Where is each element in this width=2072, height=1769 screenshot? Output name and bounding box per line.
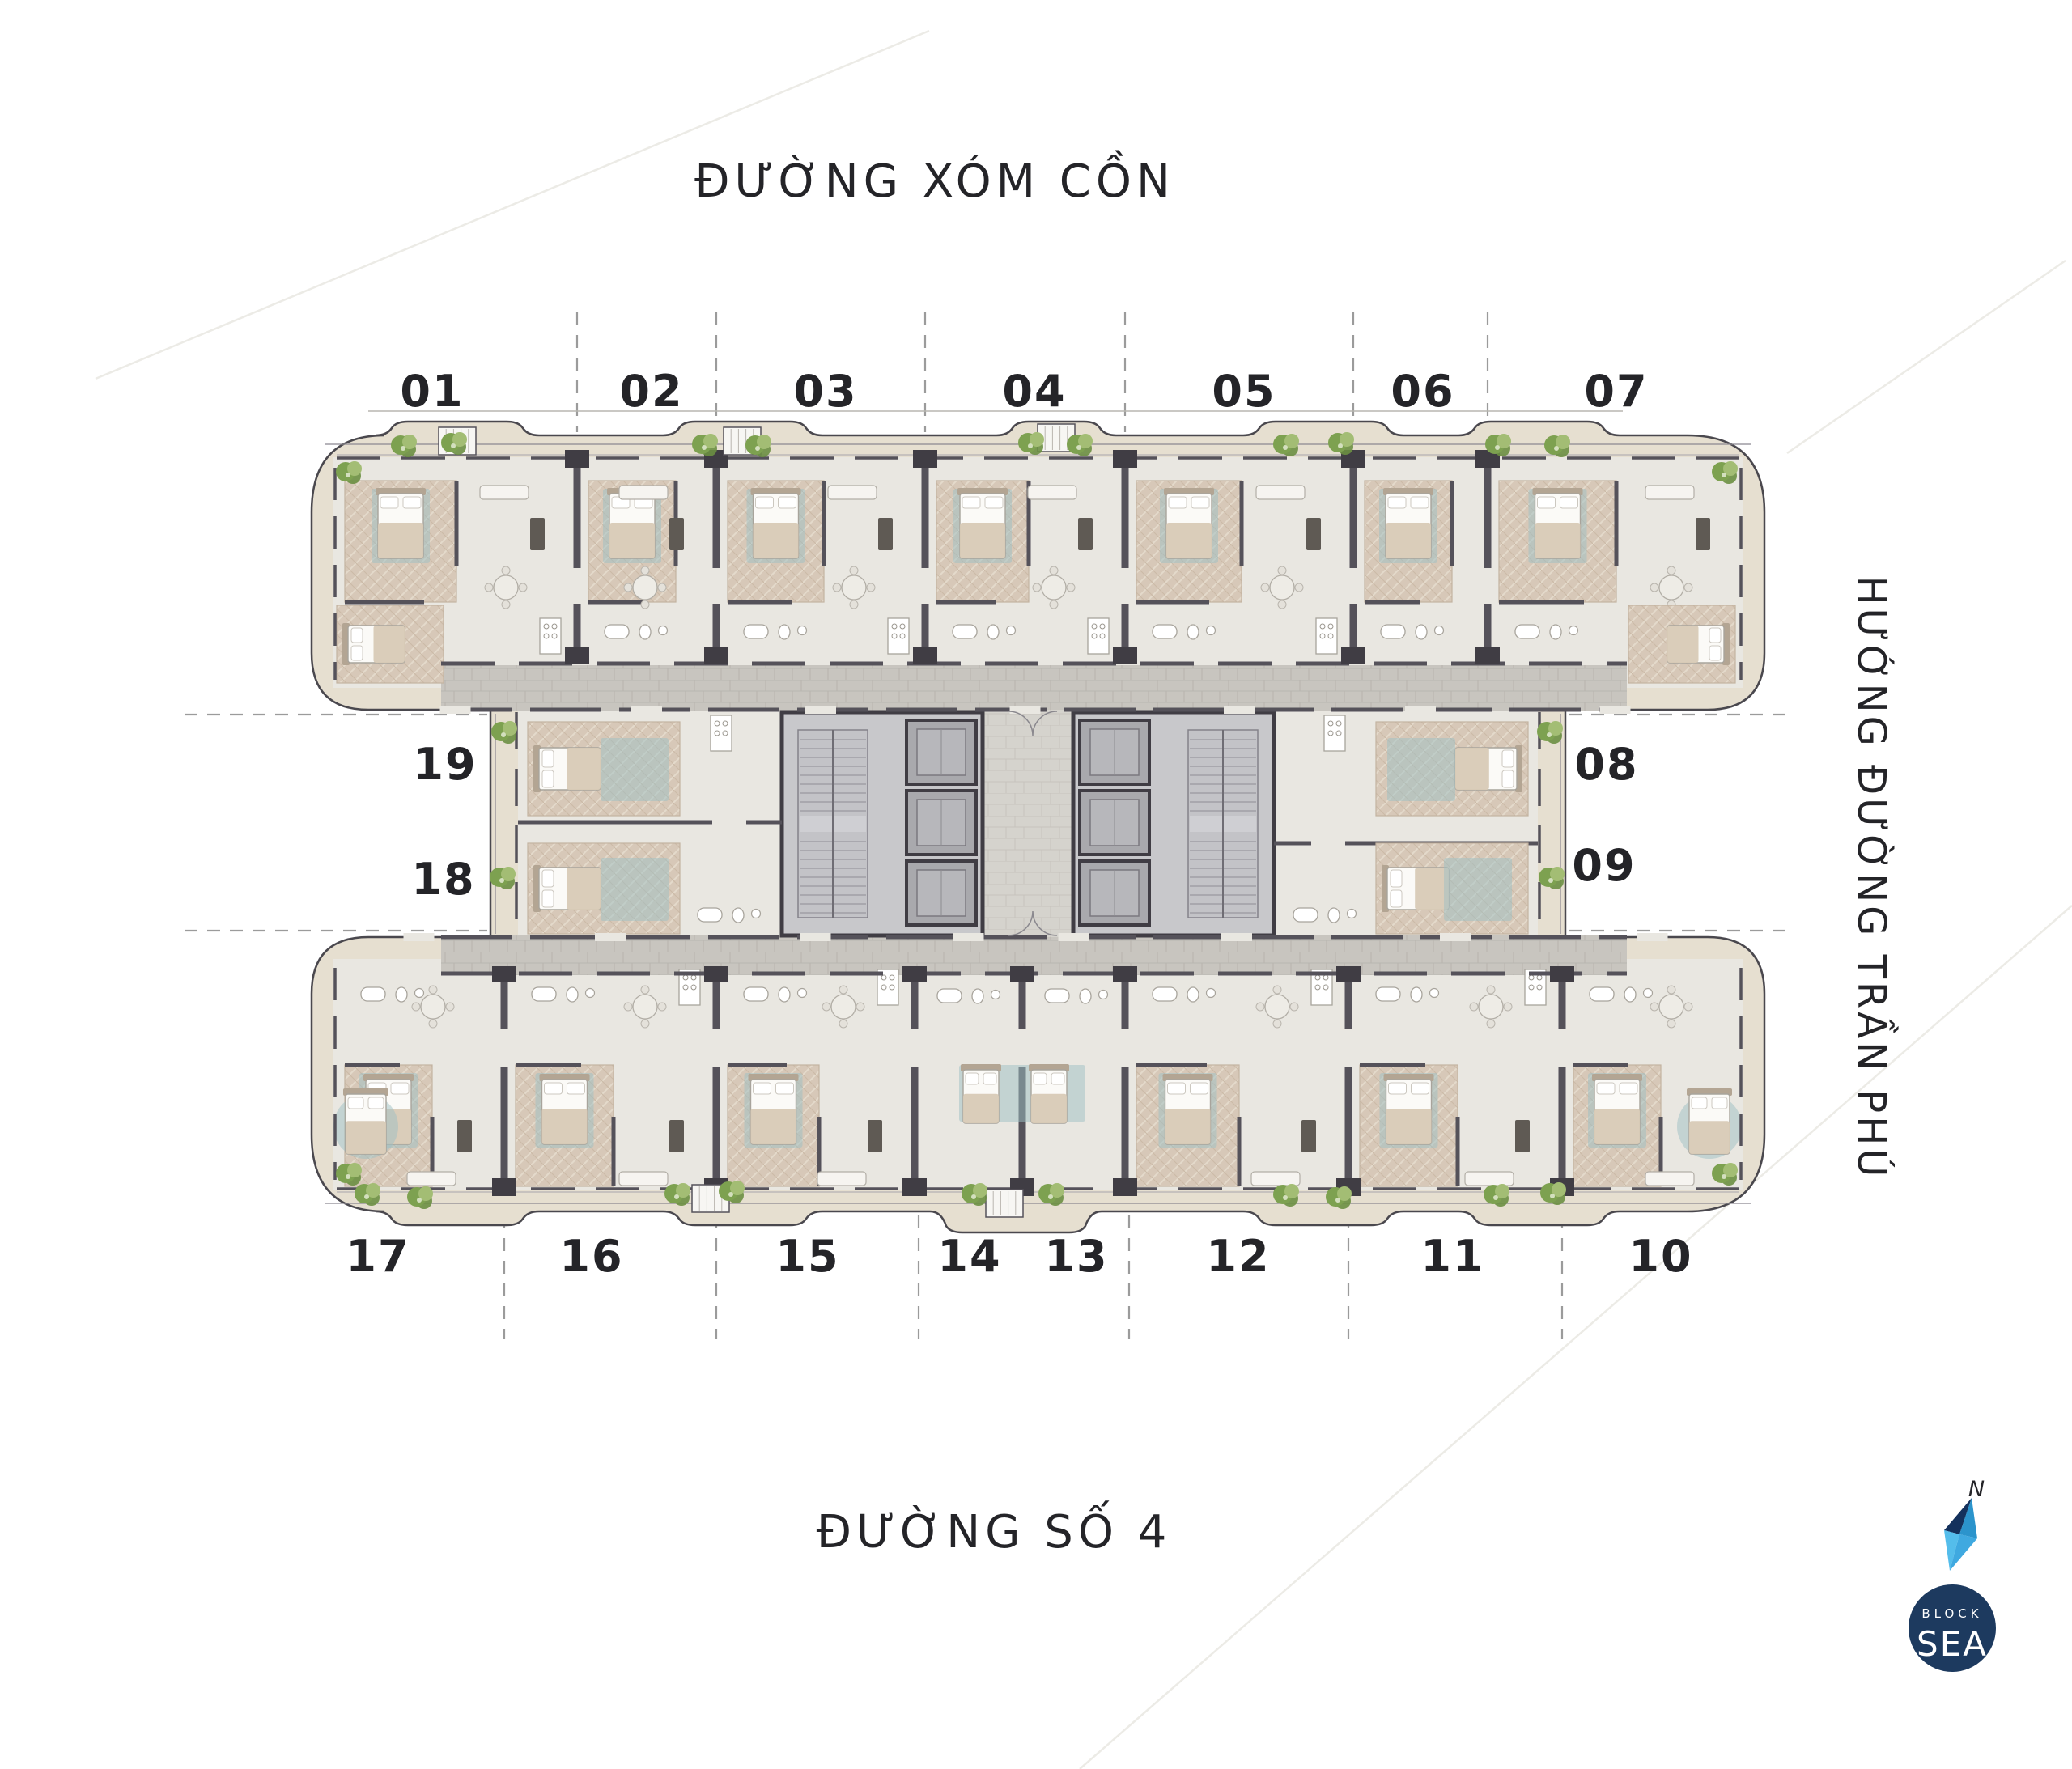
sink	[1207, 626, 1216, 635]
toilet	[639, 625, 651, 639]
unit-label-13: 13	[1044, 1231, 1108, 1282]
units-14-13-bedrooms	[959, 1064, 1085, 1123]
column	[1341, 647, 1365, 664]
tv-console	[457, 1120, 472, 1152]
column	[565, 647, 589, 664]
dining-table	[633, 575, 657, 600]
unit-label-14: 14	[937, 1231, 1001, 1282]
unit-label-17: 17	[346, 1231, 410, 1282]
dining-table	[1042, 575, 1066, 600]
column	[913, 450, 937, 468]
door-opening	[1637, 933, 1668, 941]
sink	[991, 991, 1000, 999]
sink	[659, 626, 668, 635]
unit-07-extra	[1628, 605, 1735, 683]
unit-label-15: 15	[775, 1231, 839, 1282]
sink	[1644, 989, 1653, 998]
unit-label-19: 19	[413, 739, 477, 790]
column	[1113, 647, 1137, 664]
bathtub	[532, 987, 556, 1001]
unit-label-03: 03	[793, 366, 857, 417]
sink	[798, 626, 807, 635]
sink	[1435, 626, 1444, 635]
sofa	[1645, 1172, 1694, 1186]
toilet	[1550, 625, 1561, 639]
dining-table	[633, 995, 657, 1019]
column	[1336, 966, 1361, 982]
sofa	[1251, 1172, 1300, 1186]
dining-table	[1270, 575, 1294, 600]
kitchen-counter	[1088, 618, 1109, 654]
toilet	[1187, 625, 1199, 639]
sink	[1207, 989, 1216, 998]
column	[704, 966, 728, 982]
door-opening	[1221, 933, 1252, 941]
column	[704, 647, 728, 664]
dining-table	[1479, 995, 1503, 1019]
sofa	[1028, 486, 1076, 499]
bathtub	[1153, 625, 1177, 638]
dining-table	[1659, 575, 1683, 600]
door-opening	[595, 933, 626, 941]
unit-label-02: 02	[619, 366, 683, 417]
tv-console	[878, 518, 893, 550]
toilet	[987, 625, 999, 639]
rug	[601, 738, 669, 801]
sink	[415, 989, 424, 998]
door-opening	[953, 933, 984, 941]
kitchen-counter	[540, 618, 561, 654]
unit-label-01: 01	[400, 366, 464, 417]
bathtub	[937, 989, 962, 1003]
door-opening	[1224, 706, 1255, 714]
bathtub	[1153, 987, 1177, 1001]
kitchen-counter	[711, 715, 732, 751]
door-opening	[404, 933, 435, 941]
door-opening	[805, 706, 836, 714]
column	[1113, 1178, 1137, 1196]
toilet	[779, 987, 790, 1002]
toilet	[972, 989, 983, 1003]
kitchen-counter	[888, 618, 909, 654]
column	[1113, 450, 1137, 468]
toilet	[1624, 987, 1636, 1002]
unit-label-05: 05	[1212, 366, 1276, 417]
column	[1475, 647, 1500, 664]
street-label-right: HƯỚNG ĐƯỜNG TRẦN PHÚ	[1849, 576, 1899, 1181]
toilet	[1328, 908, 1340, 923]
dining-table	[494, 575, 518, 600]
dining-table	[831, 995, 856, 1019]
unit-label-16: 16	[559, 1231, 623, 1282]
sink	[1007, 626, 1016, 635]
toilet	[1187, 987, 1199, 1002]
dining-table	[842, 575, 866, 600]
unit-label-04: 04	[1002, 366, 1066, 417]
tv-console	[669, 1120, 684, 1152]
door-opening	[1405, 706, 1436, 714]
column	[1010, 966, 1034, 982]
unit-label-11: 11	[1420, 1231, 1484, 1282]
block-badge: BLOCK SEA	[1909, 1584, 1996, 1672]
column	[492, 1178, 516, 1196]
bathtub	[744, 987, 768, 1001]
column	[1113, 966, 1137, 982]
sofa	[619, 486, 668, 499]
kitchen-counter	[1324, 715, 1345, 751]
toilet	[1416, 625, 1427, 639]
bathtub	[1590, 987, 1614, 1001]
sink	[1430, 989, 1439, 998]
kitchen-counter	[1316, 618, 1337, 654]
sofa	[1256, 486, 1305, 499]
dining-table	[1659, 995, 1683, 1019]
sink	[1099, 991, 1108, 999]
sofa	[1645, 486, 1694, 499]
bathtub	[1293, 908, 1318, 922]
unit-label-08: 08	[1574, 739, 1638, 790]
door-opening	[631, 706, 662, 714]
unit-label-07: 07	[1584, 366, 1648, 417]
central-lobby	[983, 710, 1073, 937]
tv-console	[669, 518, 684, 550]
bathtub	[605, 625, 629, 638]
door-opening	[1059, 933, 1089, 941]
floor-plan-page: 01020304050607171615141312111019180809 Đ…	[0, 0, 2072, 1769]
dining-table	[1265, 995, 1289, 1019]
balcony-trellis	[986, 1190, 1023, 1217]
street-label-bottom: ĐƯỜNG SỐ 4	[817, 1501, 1172, 1559]
rug	[1444, 858, 1512, 921]
badge-sea-label: SEA	[1917, 1624, 1988, 1664]
unit-01-extra	[337, 605, 444, 683]
sink	[1348, 910, 1357, 918]
bathtub	[1381, 625, 1405, 638]
rug	[1387, 738, 1455, 801]
floor-plan-canvas: 01020304050607171615141312111019180809 Đ…	[0, 0, 2072, 1769]
toilet	[732, 908, 744, 923]
column	[913, 647, 937, 664]
sofa	[828, 486, 877, 499]
building	[312, 422, 1764, 1232]
bathtub	[1515, 625, 1539, 638]
column	[902, 1178, 927, 1196]
door-opening	[1600, 706, 1631, 714]
sink	[798, 989, 807, 998]
sofa	[407, 1172, 456, 1186]
rug	[601, 858, 669, 921]
tv-console	[1301, 1120, 1316, 1152]
door-opening	[1440, 933, 1471, 941]
unit-label-18: 18	[411, 854, 475, 905]
toilet	[396, 987, 407, 1002]
tv-console	[1078, 518, 1093, 550]
unit-label-09: 09	[1572, 840, 1636, 891]
unit-label-10: 10	[1628, 1231, 1692, 1282]
door-opening	[800, 933, 831, 941]
sink	[1569, 626, 1578, 635]
sofa	[619, 1172, 668, 1186]
toilet	[1411, 987, 1422, 1002]
toilet	[567, 987, 578, 1002]
tv-console	[530, 518, 545, 550]
column	[1550, 966, 1574, 982]
column	[902, 966, 927, 982]
bathtub	[1376, 987, 1400, 1001]
bathtub	[698, 908, 722, 922]
sink	[586, 989, 595, 998]
sofa	[480, 486, 529, 499]
toilet	[1080, 989, 1091, 1003]
tv-console	[1696, 518, 1710, 550]
bathtub	[953, 625, 977, 638]
bathtub	[744, 625, 768, 638]
unit-label-12: 12	[1206, 1231, 1270, 1282]
tv-console	[868, 1120, 882, 1152]
tv-console	[1306, 518, 1321, 550]
sink	[752, 910, 761, 918]
sofa	[817, 1172, 866, 1186]
compass-n-label: N	[1968, 1477, 1985, 1502]
sofa	[1465, 1172, 1514, 1186]
column	[565, 450, 589, 468]
column	[492, 966, 516, 982]
toilet	[779, 625, 790, 639]
door-opening	[440, 706, 471, 714]
badge-block-label: BLOCK	[1921, 1606, 1982, 1621]
tv-console	[1515, 1120, 1530, 1152]
bathtub	[361, 987, 385, 1001]
bathtub	[1045, 989, 1069, 1003]
unit-label-06: 06	[1391, 366, 1454, 417]
dining-table	[421, 995, 445, 1019]
street-label-top: ĐƯỜNG XÓM CỒN	[694, 151, 1175, 208]
